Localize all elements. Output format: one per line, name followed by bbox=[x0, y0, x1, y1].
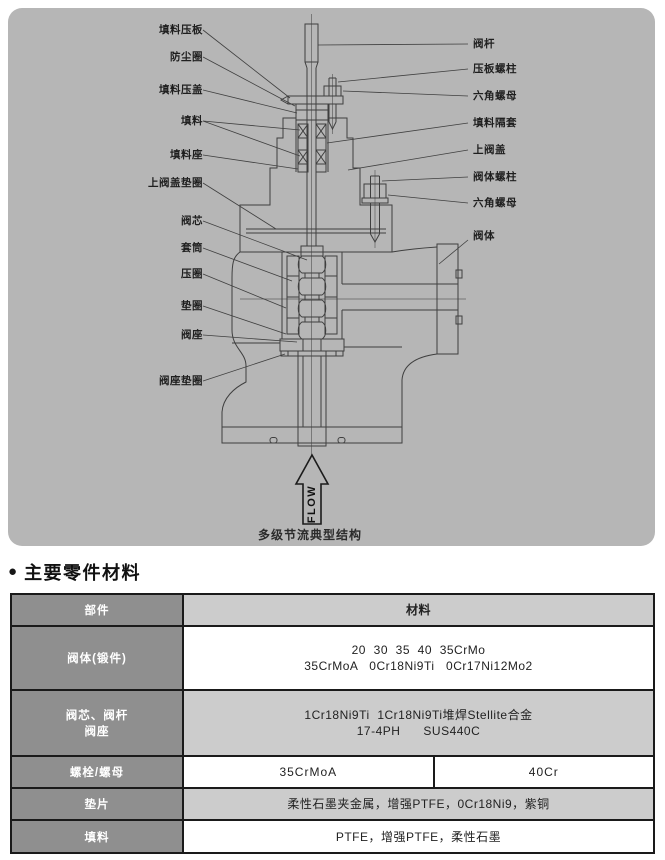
bottom-flange bbox=[222, 427, 402, 443]
table-row-packing: 填料 PTFE，增强PTFE，柔性石墨 bbox=[12, 819, 653, 852]
material-cell-left: 35CrMoA bbox=[184, 757, 433, 787]
label-packing-spacer: 填料隔套 bbox=[473, 116, 517, 130]
part-cell: 螺栓/螺母 bbox=[12, 757, 184, 787]
part-cell: 阀芯、阀杆 阀座 bbox=[12, 691, 184, 755]
label-sleeve: 套筒 bbox=[181, 241, 203, 255]
material-cell: 柔性石墨夹金属，增强PTFE，0Cr18Ni9，紫铜 bbox=[184, 789, 653, 819]
label-packing: 填料 bbox=[181, 114, 203, 128]
label-press-ring: 压圈 bbox=[181, 267, 203, 281]
label-hex-nut-1: 六角螺母 bbox=[473, 89, 517, 103]
material-cell: 20 30 35 40 35CrMo 35CrMoA 0Cr18Ni9Ti 0C… bbox=[184, 627, 653, 689]
label-hex-nut-2: 六角螺母 bbox=[473, 196, 517, 210]
material-split-cell: 35CrMoA 40Cr bbox=[184, 757, 653, 787]
part-cell: 垫片 bbox=[12, 789, 184, 819]
label-body: 阀体 bbox=[473, 229, 495, 243]
stuffing-box bbox=[296, 104, 328, 172]
section-title: 主要零件材料 bbox=[24, 559, 141, 585]
material-cell: PTFE，增强PTFE，柔性石墨 bbox=[184, 821, 653, 852]
label-packing-plate: 填料压板 bbox=[159, 23, 203, 37]
part-cell: 填料 bbox=[12, 821, 184, 852]
leader-lines-right bbox=[318, 44, 468, 264]
label-seat: 阀座 bbox=[181, 328, 203, 342]
material-cell: 1Cr18Ni9Ti 1Cr18Ni9Ti堆焊Stellite合金 17-4PH… bbox=[184, 691, 653, 755]
materials-table: 部件 材料 阀体(锻件) 20 30 35 40 35CrMo 35CrMoA … bbox=[10, 593, 655, 854]
table-header-row: 部件 材料 bbox=[12, 595, 653, 625]
label-seat-gasket: 阀座垫圈 bbox=[159, 374, 203, 388]
valve-diagram-panel: 填料压板 防尘圈 填料压盖 填料 填料座 上阀盖垫圈 阀芯 套筒 压圈 垫圈 阀… bbox=[8, 8, 655, 546]
flow-label: FLOW bbox=[305, 482, 319, 526]
body-outline bbox=[222, 252, 246, 427]
table-row-body: 阀体(锻件) 20 30 35 40 35CrMo 35CrMoA 0Cr18N… bbox=[12, 625, 653, 689]
label-stem: 阀杆 bbox=[473, 37, 495, 51]
label-bonnet: 上阀盖 bbox=[473, 143, 506, 157]
label-dust-ring: 防尘圈 bbox=[170, 50, 203, 64]
catalog-page: 填料压板 防尘圈 填料压盖 填料 填料座 上阀盖垫圈 阀芯 套筒 压圈 垫圈 阀… bbox=[0, 0, 665, 860]
label-packing-seat: 填料座 bbox=[170, 148, 203, 162]
label-bonnet-gasket: 上阀盖垫圈 bbox=[148, 176, 203, 190]
header-material-cell: 材料 bbox=[184, 595, 653, 625]
table-row-gasket: 垫片 柔性石墨夹金属，增强PTFE，0Cr18Ni9，紫铜 bbox=[12, 787, 653, 819]
table-row-bolt: 螺栓/螺母 35CrMoA 40Cr bbox=[12, 755, 653, 787]
part-cell: 阀体(锻件) bbox=[12, 627, 184, 689]
label-plate-stud: 压板螺柱 bbox=[473, 62, 517, 76]
material-cell-right: 40Cr bbox=[433, 757, 653, 787]
section-bullet-icon: ● bbox=[8, 561, 17, 583]
label-plug: 阀芯 bbox=[181, 214, 203, 228]
valve-cross-section-drawing bbox=[8, 8, 655, 546]
header-part-cell: 部件 bbox=[12, 595, 184, 625]
diagram-caption: 多级节流典型结构 bbox=[230, 526, 390, 543]
valve-plug bbox=[298, 246, 326, 339]
label-body-stud: 阀体螺柱 bbox=[473, 170, 517, 184]
label-packing-gland: 填料压盖 bbox=[159, 83, 203, 97]
label-washer: 垫圈 bbox=[181, 299, 203, 313]
section-heading: ● 主要零件材料 bbox=[8, 559, 141, 585]
table-row-trim: 阀芯、阀杆 阀座 1Cr18Ni9Ti 1Cr18Ni9Ti堆焊Stellite… bbox=[12, 689, 653, 755]
